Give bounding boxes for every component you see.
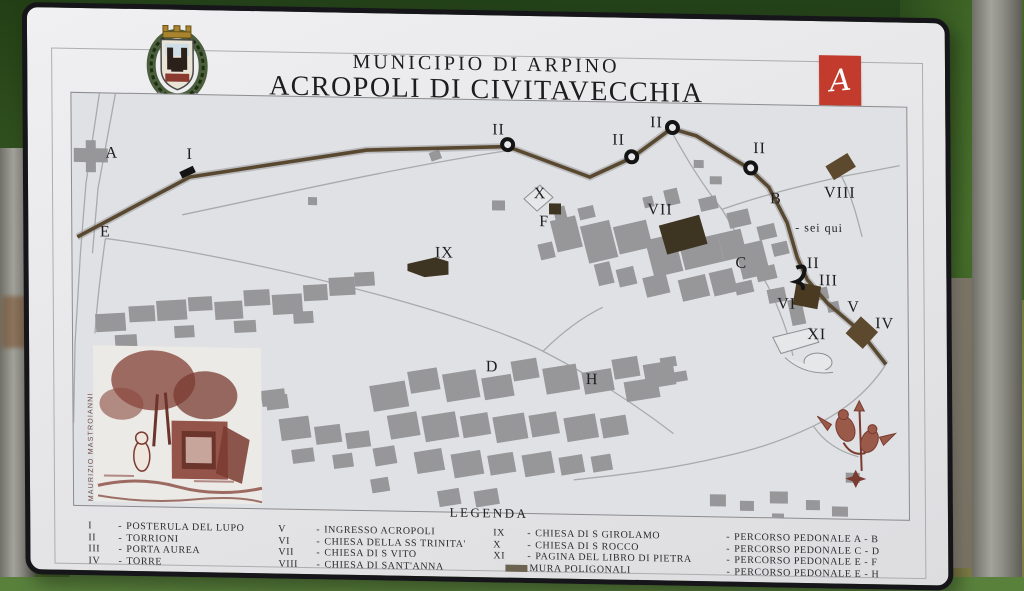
legend-key: VIII (278, 558, 312, 570)
legend-label: CHIESA DI SANT'ANNA (324, 559, 443, 572)
legend-dash: - (722, 543, 734, 554)
tower-marker-icon (500, 137, 515, 152)
legend-key: III (88, 543, 114, 554)
stylized-a-glyph: A (817, 62, 863, 101)
legend-dash: - (312, 524, 324, 535)
legend-label: PERCORSO PEDONALE E - H (734, 566, 879, 580)
legend-dash: - (722, 555, 734, 566)
legend-dash: - (722, 532, 734, 543)
legend-dash: - (523, 551, 535, 562)
legend-dash: - (312, 547, 324, 558)
legend-key: II (88, 532, 114, 543)
legend-label: PORTA AUREA (126, 544, 200, 556)
legend-dash: - (114, 555, 126, 566)
legend-key: IX (493, 528, 523, 540)
legend-key: IV (88, 555, 114, 566)
wall-swatch-icon (505, 564, 527, 571)
legend-column-4: -PERCORSO PEDONALE A - B-PERCORSO PEDONA… (718, 531, 908, 580)
legend-entry: VIII-CHIESA DI SANT'ANNA (278, 558, 493, 573)
legend-column-2: V-INGRESSO ACROPOLIVI-CHIESA DELLA SS TR… (278, 524, 493, 574)
legend-label: TORRE (126, 556, 162, 568)
tower-marker-icon (743, 160, 758, 175)
illustrator-credit: MAURIZIO MASTROIANNI (87, 361, 95, 501)
legend-dash: - (114, 544, 126, 555)
legend-dash: - (312, 536, 324, 547)
legend-dash: - (114, 532, 126, 543)
legend-key: VI (278, 535, 312, 547)
sign-panel: MUNICIPIO DI ARPINO ACROPOLI DI CIVITAVE… (22, 2, 954, 591)
legend-dash: - (523, 528, 535, 539)
acropolis-map: AIEIIIIIIIIIIXFVIIBVIIIIXCIIIVIVIVXIDH- … (70, 92, 910, 521)
signpost-right (972, 0, 1022, 577)
legend-label: TORRIONI (126, 533, 178, 545)
legend-label: MURA POLIGONALI (529, 563, 631, 576)
legend-key: XI (493, 551, 523, 563)
legend-dash: - (114, 521, 126, 532)
legend-label: CHIESA DI S VITO (324, 548, 416, 561)
legend-key: VII (278, 547, 312, 559)
legend-column-1: I-POSTERULA DEL LUPOII-TORRIONIIII-PORTA… (88, 520, 278, 569)
legend-dash: - (523, 540, 535, 551)
map-towers (71, 93, 909, 520)
legend-dash: - (722, 566, 734, 577)
legend-entry: -PERCORSO PEDONALE E - H (718, 566, 908, 581)
legend-key: X (493, 539, 523, 551)
legend-entry: IV-TORRE (88, 555, 278, 570)
tower-marker-icon (665, 120, 680, 135)
archeo-logo-icon: A (819, 55, 861, 112)
legend-key: V (278, 524, 312, 536)
legend-key: I (88, 520, 114, 531)
legend-column-3: IX-CHIESA DI S GIROLAMOX-CHIESA DI S ROC… (493, 527, 718, 577)
legend-dash: - (312, 559, 324, 570)
tower-marker-icon (624, 149, 639, 164)
